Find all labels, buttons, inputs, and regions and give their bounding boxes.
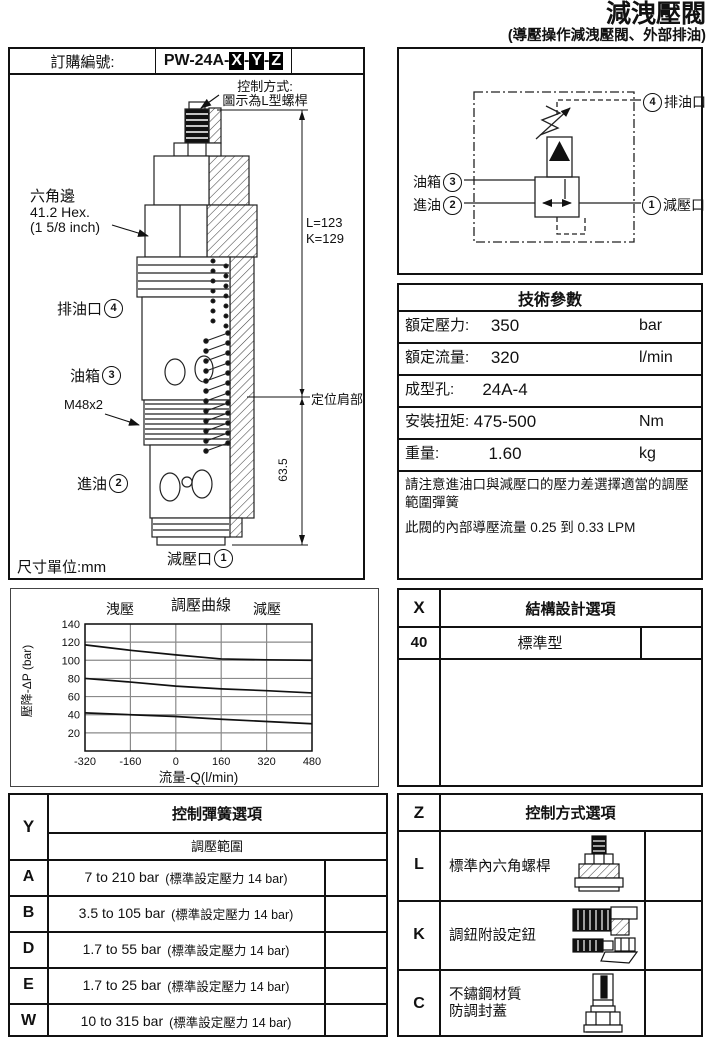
hydraulic-symbol-drawing [399, 49, 701, 273]
tank-port-text: 油箱 [70, 365, 100, 386]
z-row-label-line1: 不鏽鋼材質 [449, 987, 522, 1004]
z-row-label: 標準內六角螺桿 [449, 830, 551, 900]
y-row-range: 3.5 to 105 bar (標準設定壓力 14 bar) [48, 895, 324, 931]
svg-text:60: 60 [68, 692, 80, 704]
drain-port-text: 排油口 [57, 298, 102, 319]
hex-label-line2: 41.2 Hex. [30, 205, 100, 220]
tech-params-panel: 技術參數 額定壓力: 350 bar 額定流量: 320 l/min 成型孔: … [397, 283, 703, 580]
height-dimension-label: 63.5 [276, 450, 290, 490]
symbol-tank-port-text: 油箱 [413, 172, 441, 192]
x-table-title: 結構設計選項 [440, 590, 701, 626]
ordering-code-z: Z [269, 52, 283, 70]
title-block: 減洩壓閥 (導壓操作減洩壓閥、外部排油) [508, 1, 706, 44]
ordering-code: PW-24A-X-Y-Z [156, 49, 292, 73]
locating-shoulder-label: 定位肩部 [311, 389, 363, 408]
svg-text:120: 120 [62, 637, 80, 649]
svg-text:-320: -320 [74, 756, 96, 768]
y-row-code: D [10, 931, 47, 967]
tech-note-pilot-flow: 此閥的內部導壓流量 0.25 到 0.33 LPM [405, 519, 693, 537]
y-row-range: 1.7 to 55 bar (標準設定壓力 14 bar) [48, 931, 324, 967]
ordering-prefix: PW-24A- [164, 52, 229, 70]
y-row-range: 7 to 210 bar (標準設定壓力 14 bar) [48, 859, 324, 895]
x-table-key: X [399, 590, 439, 626]
ordering-box: 訂購編號: PW-24A-X-Y-Z [8, 47, 365, 75]
y-range-note: (標準設定壓力 14 bar) [167, 976, 289, 995]
tech-row-flow: 額定流量: 320 l/min [399, 342, 701, 374]
y-range-text: 1.7 to 55 bar [83, 941, 162, 957]
symbol-tank-port-label: 油箱 3 [405, 172, 462, 192]
tech-unit: bar [639, 310, 662, 342]
control-type-note-line2: 圖示為L型螺桿 [210, 94, 320, 108]
y-range-text: 1.7 to 25 bar [83, 977, 162, 993]
drain-port-label: 排油口 4 [57, 298, 123, 319]
valve-drawing-panel: 控制方式: 圖示為L型螺桿 六角邊 41.2 Hex. (1 5/8 inch)… [8, 75, 365, 580]
z-row-code: K [399, 900, 439, 969]
y-row-code: E [10, 967, 47, 1003]
z-row-label-line2: 防調封蓋 [449, 1004, 522, 1021]
y-row-range: 1.7 to 25 bar (標準設定壓力 14 bar) [48, 967, 324, 1003]
ordering-code-y: Y [249, 52, 264, 70]
y-row-code: B [10, 895, 47, 931]
z-row-label: 不鏽鋼材質 防調封蓋 [449, 969, 522, 1039]
units-note: 尺寸單位:mm [17, 556, 106, 577]
svg-text:80: 80 [68, 673, 80, 685]
tech-value: 350 [445, 310, 565, 342]
inlet-port-text: 進油 [77, 473, 107, 494]
symbol-reduced-port-label: 1 減壓口 [642, 195, 705, 215]
hydraulic-symbol-panel: 4 排油口 油箱 3 進油 2 1 減壓口 [397, 47, 703, 275]
z-row-code: C [399, 969, 439, 1039]
length-dimension-label: L=123 K=129 [306, 215, 344, 246]
socket-screw-icon [571, 835, 627, 895]
pressure-curve-chart: -320-160016032048020406080100120140 [11, 589, 378, 786]
port-4-circle: 4 [104, 299, 123, 318]
control-type-note: 控制方式: 圖示為L型螺桿 [210, 80, 320, 107]
y-row-range: 10 to 315 bar (標準設定壓力 14 bar) [48, 1003, 324, 1039]
ordering-empty-cell [292, 49, 363, 73]
y-row-code: A [10, 859, 47, 895]
x-row-label: 標準型 [440, 626, 640, 658]
y-range-note: (標準設定壓力 14 bar) [169, 1012, 291, 1031]
symbol-port-3-circle: 3 [443, 173, 462, 192]
x-option-table: X 結構設計選項 40 標準型 [397, 588, 703, 787]
ordering-label: 訂購編號: [10, 49, 156, 73]
z-row-code: L [399, 830, 439, 900]
svg-text:40: 40 [68, 710, 80, 722]
y-range-note: (標準設定壓力 14 bar) [171, 904, 293, 923]
z-row-label: 調鈕附設定鈕 [449, 900, 536, 969]
tank-port-label: 油箱 3 [70, 365, 121, 386]
page-subtitle: (導壓操作減洩壓閥、外部排油) [508, 29, 706, 45]
tech-value: 475-500 [445, 406, 565, 438]
reduced-port-label: 減壓口 1 [167, 548, 233, 569]
y-option-table: Y 控制彈簧選項 調壓範圍 A 7 to 210 bar (標準設定壓力 14 … [8, 793, 388, 1037]
tech-label: 重量: [405, 438, 439, 470]
tech-row-weight: 重量: 1.60 kg [399, 438, 701, 470]
y-range-text: 3.5 to 105 bar [79, 905, 165, 921]
page-title: 減洩壓閥 [508, 1, 706, 29]
svg-text:140: 140 [62, 619, 80, 631]
chart-title: 調壓曲線 [141, 594, 261, 615]
tech-row-torque: 安裝扭矩: 475-500 Nm [399, 406, 701, 438]
valve-cross-section-drawing [10, 75, 363, 576]
y-range-text: 7 to 210 bar [85, 869, 160, 885]
tech-value: 320 [445, 342, 565, 374]
tech-params-title: 技術參數 [399, 285, 701, 310]
chart-label-reduce: 減壓 [253, 599, 281, 619]
thread-size-label: M48x2 [64, 397, 103, 412]
svg-text:100: 100 [62, 655, 80, 667]
chart-panel: -320-160016032048020406080100120140 洩壓 調… [10, 588, 379, 787]
inlet-port-label: 進油 2 [77, 473, 128, 494]
hex-size-label: 六角邊 41.2 Hex. (1 5/8 inch) [30, 189, 100, 235]
symbol-port-4-circle: 4 [643, 93, 662, 112]
tech-row-cavity: 成型孔: 24A-4 [399, 374, 701, 406]
symbol-reduced-port-text: 減壓口 [663, 195, 705, 215]
symbol-port-2-circle: 2 [443, 196, 462, 215]
z-table-title: 控制方式選項 [440, 795, 701, 830]
dim-l-text: L=123 [306, 215, 344, 231]
thread-size-text: M48x2 [64, 397, 103, 412]
ordering-code-x: X [229, 52, 244, 70]
port-3-circle: 3 [102, 366, 121, 385]
hex-label-line1: 六角邊 [30, 189, 100, 205]
datasheet-page: 減洩壓閥 (導壓操作減洩壓閥、外部排油) 訂購編號: PW-24A-X-Y-Z [0, 0, 711, 1040]
symbol-inlet-port-text: 進油 [413, 195, 441, 215]
tech-row-pressure: 額定壓力: 350 bar [399, 310, 701, 342]
symbol-inlet-port-label: 進油 2 [405, 195, 462, 215]
reduced-port-text: 減壓口 [167, 548, 212, 569]
tech-value: 1.60 [445, 438, 565, 470]
z-table-key: Z [399, 795, 439, 830]
adjust-knob-icon [571, 903, 649, 965]
port-1-circle: 1 [214, 549, 233, 568]
symbol-drain-port-label: 4 排油口 [643, 92, 706, 112]
chart-xlabel: 流量-Q(l/min) [111, 766, 286, 786]
y-row-code: W [10, 1003, 47, 1039]
y-range-note: (標準設定壓力 14 bar) [165, 868, 287, 887]
tech-value: 24A-4 [445, 374, 565, 406]
tech-unit: l/min [639, 342, 673, 374]
tamper-proof-cap-icon [579, 972, 627, 1036]
y-table-title: 控制彈簧選項 [48, 795, 386, 832]
y-range-text: 10 to 315 bar [81, 1013, 164, 1029]
port-2-circle: 2 [109, 474, 128, 493]
chart-label-relief: 洩壓 [106, 599, 134, 619]
y-table-subtitle: 調壓範圍 [48, 832, 386, 859]
tech-unit: Nm [639, 406, 664, 438]
tech-note-spring: 請注意進油口與減壓口的壓力差選擇適當的調壓範圍彈簧 [405, 476, 693, 511]
z-option-table: Z 控制方式選項 L 標準內六角螺桿 [397, 793, 703, 1037]
x-row-code: 40 [399, 626, 439, 658]
tech-unit: kg [639, 438, 656, 470]
y-table-key: Y [10, 795, 47, 859]
symbol-port-1-circle: 1 [642, 196, 661, 215]
dim-k-text: K=129 [306, 231, 344, 247]
control-type-note-line1: 控制方式: [210, 80, 320, 94]
y-range-note: (標準設定壓力 14 bar) [167, 940, 289, 959]
hex-label-line3: (1 5/8 inch) [30, 220, 100, 235]
symbol-drain-port-text: 排油口 [664, 92, 706, 112]
chart-ylabel: 壓降-ΔP (bar) [18, 626, 34, 736]
svg-text:480: 480 [303, 756, 321, 768]
svg-text:20: 20 [68, 728, 80, 740]
